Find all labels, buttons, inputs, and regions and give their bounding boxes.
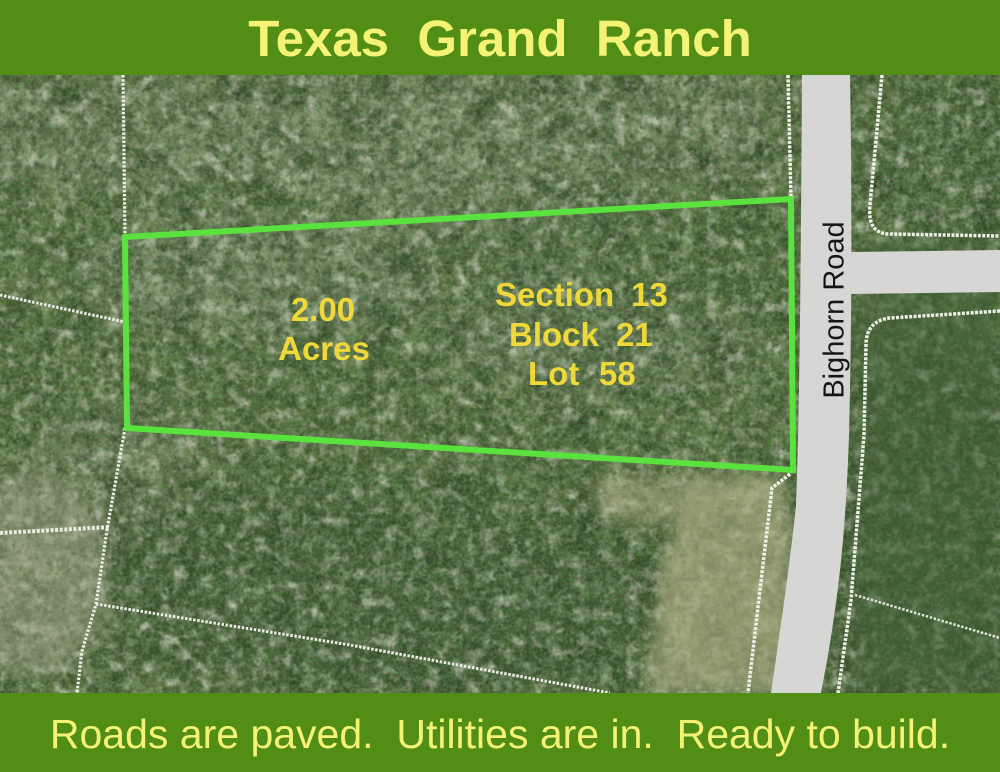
svg-text:Acres: Acres (278, 330, 370, 367)
svg-text:21: 21 (616, 316, 653, 353)
svg-text:Lot: Lot (528, 355, 579, 392)
svg-text:13: 13 (631, 276, 668, 313)
svg-text:Bighorn Road: Bighorn Road (819, 221, 851, 398)
svg-text:Block: Block (509, 316, 600, 353)
svg-text:2.00: 2.00 (291, 291, 355, 328)
svg-text:58: 58 (599, 355, 636, 392)
svg-text:Section: Section (495, 276, 614, 313)
